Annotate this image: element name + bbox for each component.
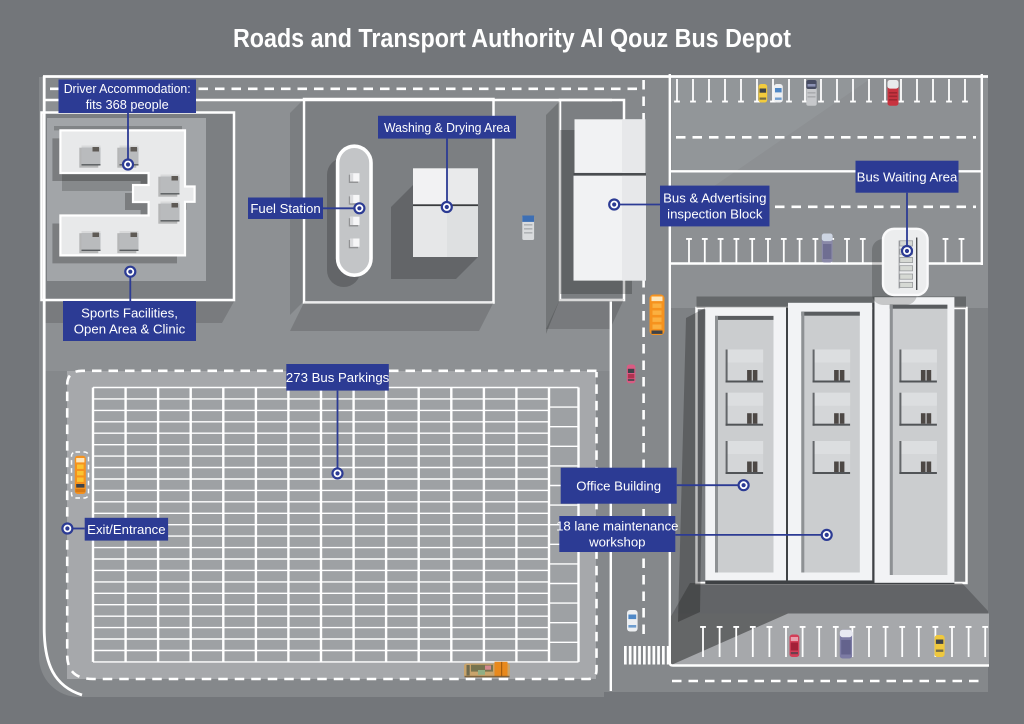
svg-text:Washing & Drying Area: Washing & Drying Area xyxy=(384,120,511,135)
svg-text:Bus & Advertising: Bus & Advertising xyxy=(663,191,766,206)
svg-text:workshop: workshop xyxy=(588,535,645,550)
svg-text:Driver Accommodation:: Driver Accommodation: xyxy=(64,81,191,96)
svg-text:Roads and Transport Authority: Roads and Transport Authority Al Qouz Bu… xyxy=(233,25,791,53)
svg-text:Office Building: Office Building xyxy=(576,478,661,493)
svg-text:Sports Facilities,: Sports Facilities, xyxy=(81,306,178,321)
svg-text:Bus Waiting Area: Bus Waiting Area xyxy=(857,169,958,184)
svg-text:273 Bus Parkings: 273 Bus Parkings xyxy=(286,370,390,385)
svg-text:fits 368 people: fits 368 people xyxy=(86,97,169,112)
svg-text:Fuel Station: Fuel Station xyxy=(250,201,320,216)
svg-text:Exit/Entrance: Exit/Entrance xyxy=(87,522,165,537)
svg-text:Open Area & Clinic: Open Area & Clinic xyxy=(74,322,186,337)
svg-text:inspection Block: inspection Block xyxy=(667,207,763,222)
svg-text:18 lane maintenance: 18 lane maintenance xyxy=(556,519,678,534)
